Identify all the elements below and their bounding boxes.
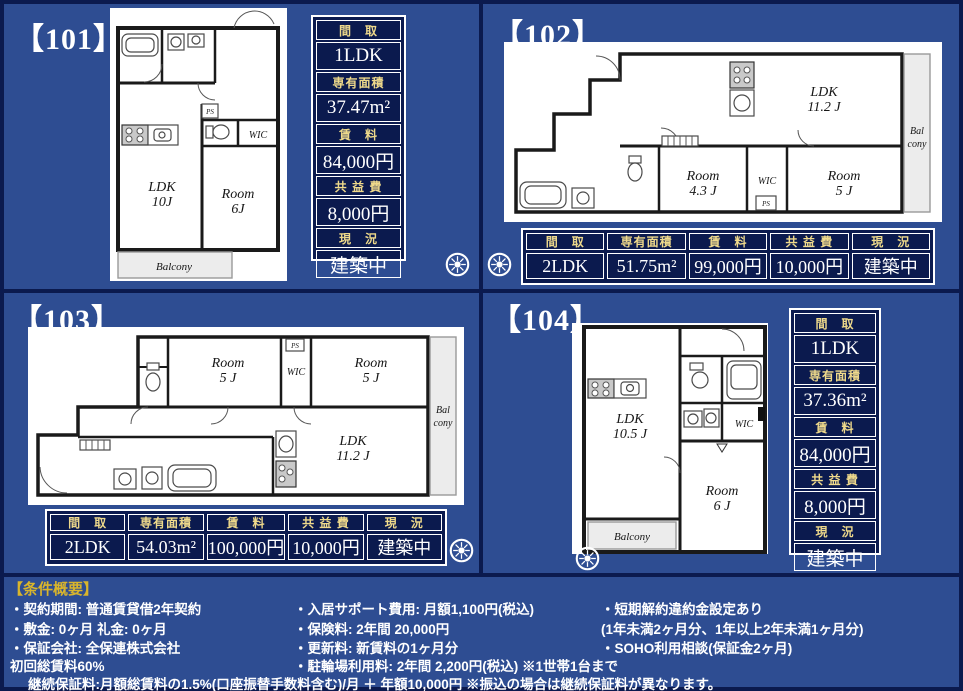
- wic-label: WIC: [758, 176, 777, 187]
- status-header: 現 況: [367, 514, 442, 531]
- balcony-label: Balcony: [156, 261, 192, 273]
- rent-value: 84,000円: [316, 146, 401, 174]
- toilet-icon: [146, 363, 160, 391]
- fee-header: 共 益 費: [316, 176, 401, 196]
- floor-plan-103: Bal cony PS: [28, 327, 464, 505]
- balcony-label-2: cony: [908, 139, 927, 150]
- fee-value: 8,000円: [316, 198, 401, 226]
- fee-value: 10,000円: [770, 253, 848, 279]
- room2-size-label: 5 J: [363, 371, 381, 386]
- floor-plan-102-drawing: Bal cony: [504, 42, 942, 222]
- fee-value: 8,000円: [794, 491, 876, 519]
- fee-header: 共 益 費: [794, 469, 876, 489]
- toilet-icon: [206, 125, 229, 139]
- room-size-label: 6 J: [714, 499, 732, 514]
- fee-header: 共 益 費: [770, 233, 848, 250]
- compass-stamp-icon: [487, 252, 512, 277]
- compass-stamp-icon: [445, 252, 470, 277]
- washbasin-icon: [572, 188, 594, 208]
- wic-label: WIC: [249, 130, 268, 141]
- status-header: 現 況: [316, 228, 401, 248]
- rent-header: 賃 料: [316, 124, 401, 144]
- balcony-label-1: Bal: [910, 126, 924, 137]
- floor-plan-104-drawing: WIC LDK 10.5 J Room 6 J Balcony: [572, 323, 768, 554]
- unit-info-table-104: 間 取 1LDK 専有面積 37.36m² 賃 料 84,000円 共 益 費 …: [789, 308, 881, 555]
- rent-value: 100,000円: [207, 534, 286, 560]
- balcony-area: [430, 337, 456, 495]
- rent-value: 84,000円: [794, 439, 876, 467]
- condition-continuing-guarantee: 継続保証料:月額総賃料の1.5%(口座振替手数料含む)/月 ＋ 年額10,000…: [28, 673, 721, 691]
- ps-label: PS: [761, 200, 770, 208]
- area-value: 37.47m²: [316, 94, 401, 122]
- kitchen-sink-icon: [614, 379, 646, 398]
- unit-panel-103: 【103】 Bal cony PS: [4, 293, 479, 573]
- room-label: Room: [221, 187, 255, 202]
- entry-door-arc: [722, 329, 744, 351]
- room-label: Room: [705, 484, 739, 499]
- floor-plan-103-drawing: Bal cony PS: [28, 327, 464, 505]
- ldk-label: LDK: [147, 180, 176, 195]
- status-value: 建築中: [316, 250, 401, 278]
- ps-shaft: [758, 407, 765, 421]
- compass-stamp-icon: [449, 538, 474, 563]
- conditions-title: 【条件概要】: [8, 578, 98, 599]
- wic-label: WIC: [287, 367, 306, 378]
- bathtub-icon: [520, 182, 566, 208]
- area-value: 54.03m²: [128, 534, 203, 560]
- condition-renewal-fee: ・更新料: 新賃料の1ヶ月分: [294, 637, 458, 657]
- toilet-icon: [628, 156, 642, 181]
- layout-header: 間 取: [794, 313, 876, 333]
- entry-door-arc: [596, 56, 620, 80]
- kitchen-sink-icon: [276, 431, 296, 457]
- rent-header: 賃 料: [207, 514, 286, 531]
- rent-header: 賃 料: [689, 233, 767, 250]
- condition-bicycle-parking: ・駐輪場利用料: 2年間 2,200円(税込) ※1世帯1台まで: [294, 655, 618, 675]
- area-header: 専有面積: [794, 365, 876, 385]
- compass-stamp-icon: [575, 546, 600, 571]
- unit-info-table-101: 間 取 1LDK 専有面積 37.47m² 賃 料 84,000円 共 益 費 …: [311, 15, 406, 261]
- status-header: 現 況: [794, 521, 876, 541]
- washer-icon: [704, 409, 719, 427]
- bathtub-icon: [122, 34, 158, 56]
- area-value: 37.36m²: [794, 387, 876, 415]
- door-arc: [144, 64, 162, 82]
- rent-header: 賃 料: [794, 417, 876, 437]
- layout-value: 2LDK: [50, 534, 125, 560]
- condition-guarantor-company: ・保証会社: 全保連株式会社: [10, 637, 180, 657]
- floor-plan-104: WIC LDK 10.5 J Room 6 J Balcony: [572, 323, 768, 554]
- washbasin-icon: [114, 469, 136, 489]
- bathtub-icon: [727, 361, 761, 399]
- door-arc: [198, 83, 215, 100]
- condition-early-termination-detail: (1年未満2ヶ月分、1年以上2年未満1ヶ月分): [601, 618, 864, 638]
- fee-value: 10,000円: [288, 534, 363, 560]
- room2-label: Room: [354, 356, 388, 371]
- area-header: 専有面積: [128, 514, 203, 531]
- condition-contract-period: ・契約期間: 普通賃貸借2年契約: [10, 598, 201, 618]
- kitchen-sink-icon: [730, 90, 754, 116]
- layout-header: 間 取: [50, 514, 125, 531]
- layout-value: 1LDK: [316, 42, 401, 70]
- entry-door-arc: [40, 467, 67, 493]
- floor-plan-102: Bal cony: [504, 42, 942, 222]
- condition-support-fee: ・入居サポート費用: 月額1,100円(税込): [294, 598, 534, 618]
- conditions-section: 【条件概要】 ・契約期間: 普通賃貸借2年契約 ・敷金: 0ヶ月 礼金: 0ヶ月…: [4, 577, 959, 687]
- ldk-label: LDK: [809, 85, 838, 100]
- kitchen-stove-icon: [730, 62, 754, 88]
- fee-header: 共 益 費: [288, 514, 363, 531]
- area-header: 専有面積: [607, 233, 685, 250]
- unit-panel-101: 【101】: [4, 4, 479, 289]
- ps-label: PS: [290, 342, 299, 350]
- layout-header: 間 取: [526, 233, 604, 250]
- unit-info-table-103: 間 取 専有面積 賃 料 共 益 費 現 況 2LDK 54.03m² 100,…: [45, 509, 447, 566]
- kitchen-stove-icon: [276, 461, 296, 487]
- condition-soho: ・SOHO利用相談(保証金2ヶ月): [601, 637, 792, 657]
- room1-label: Room: [686, 169, 720, 184]
- ps-label: PS: [205, 108, 214, 116]
- layout-header: 間 取: [316, 20, 401, 40]
- status-header: 現 況: [852, 233, 930, 250]
- condition-deposit-keymoney: ・敷金: 0ヶ月 礼金: 0ヶ月: [10, 618, 167, 638]
- door-arc: [211, 407, 228, 424]
- unit-title-101: 【101】: [14, 14, 124, 58]
- unit-panel-102: 【102】 Bal cony: [483, 4, 959, 289]
- condition-early-termination: ・短期解約違約金設定あり: [601, 598, 763, 618]
- area-header: 専有面積: [316, 72, 401, 92]
- rent-value: 99,000円: [689, 253, 767, 279]
- kitchen-stove-icon: [588, 379, 614, 398]
- shoe-shelf: [80, 440, 110, 450]
- property-flyer: 【101】: [0, 0, 963, 691]
- condition-initial-guarantee: 初回総賃料60%: [10, 655, 105, 675]
- washbasin-icon: [684, 411, 702, 427]
- door-arc: [131, 407, 148, 424]
- kitchen-sink-icon: [148, 125, 178, 145]
- status-value: 建築中: [852, 253, 930, 279]
- balcony-label: Balcony: [614, 531, 650, 543]
- entry-door-arc: [234, 11, 274, 28]
- room2-size-label: 5 J: [836, 184, 854, 199]
- wic-label: WIC: [735, 419, 754, 430]
- door-arc: [294, 407, 311, 424]
- washer-icon: [142, 467, 162, 489]
- unit-info-table-102: 間 取 専有面積 賃 料 共 益 費 現 況 2LDK 51.75m² 99,0…: [521, 228, 935, 285]
- door-arc: [798, 130, 814, 146]
- door-arc: [664, 457, 680, 473]
- door-marker: [717, 444, 727, 452]
- toilet-icon: [690, 363, 708, 388]
- layout-value: 1LDK: [794, 335, 876, 363]
- washer-icon: [168, 34, 184, 50]
- room2-label: Room: [827, 169, 861, 184]
- ldk-size-label: 11.2 J: [807, 100, 841, 115]
- condition-insurance: ・保険料: 2年間 20,000円: [294, 618, 449, 638]
- balcony-label-2: cony: [434, 418, 453, 429]
- kitchen-stove-icon: [122, 125, 148, 145]
- floor-plan-101: PS WIC LDK 10J Room 6J: [110, 8, 287, 281]
- ldk-label: LDK: [615, 412, 644, 427]
- shoe-shelf: [662, 136, 698, 146]
- ldk-size-label: 11.2 J: [336, 449, 370, 464]
- floor-plan-101-drawing: PS WIC LDK 10J Room 6J: [110, 8, 287, 281]
- ldk-size-label: 10J: [152, 195, 173, 210]
- room1-size-label: 4.3 J: [689, 184, 717, 199]
- room1-size-label: 5 J: [220, 371, 238, 386]
- status-value: 建築中: [367, 534, 442, 560]
- washbasin-icon: [188, 34, 204, 47]
- room1-label: Room: [211, 356, 245, 371]
- unit-panel-104: 【104】: [483, 293, 959, 573]
- area-value: 51.75m²: [607, 253, 685, 279]
- balcony-label-1: Bal: [436, 405, 450, 416]
- bathtub-icon: [168, 465, 216, 491]
- ldk-size-label: 10.5 J: [613, 427, 648, 442]
- status-value: 建築中: [794, 543, 876, 571]
- ldk-label: LDK: [338, 434, 367, 449]
- room-size-label: 6J: [231, 202, 245, 217]
- layout-value: 2LDK: [526, 253, 604, 279]
